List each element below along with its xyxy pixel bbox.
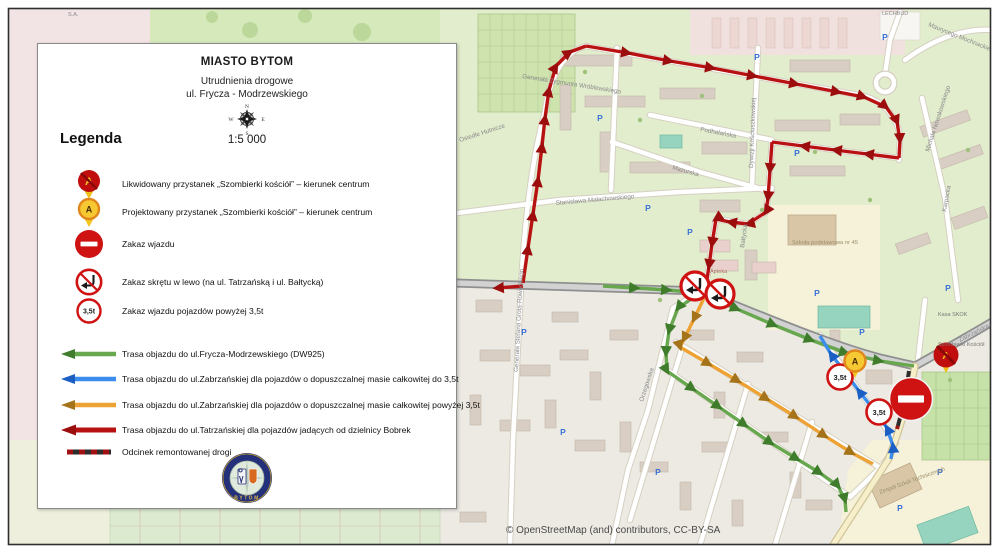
map-subtitle-line1: Utrudnienia drogowe — [38, 76, 456, 87]
red-route-swatch — [59, 423, 119, 437]
legend-item: A Projektowany przystanek „Szombierki ko… — [56, 200, 450, 224]
no-entry-icon — [74, 229, 104, 259]
poi-label: LECHBUD — [882, 11, 908, 17]
svg-text:E: E — [261, 117, 265, 123]
legend-item-label: Zakaz skrętu w lewo (na ul. Tatrzańską i… — [122, 277, 323, 287]
legend-item: A Likwidowany przystanek „Szombierki koś… — [56, 172, 450, 196]
legend-route-label: Trasa objazdu do ul.Frycza-Modrzewskiego… — [122, 349, 325, 359]
legend-item: Trasa objazdu do ul.Tatrzańskiej dla poj… — [56, 418, 450, 442]
poi-label: S.A. — [68, 12, 79, 18]
osm-attribution: © OpenStreetMap (and) contributors, CC-B… — [506, 525, 720, 536]
no-entry-sign — [890, 378, 933, 421]
legend-item: 3,5t Zakaz wjazdu pojazdów powyżej 3,5t — [56, 299, 450, 323]
weight-limit-sign: 3,5t — [867, 400, 892, 425]
bottom-allotments — [110, 508, 440, 545]
planned-stop-letter: A — [852, 357, 859, 367]
legend-route-label: Odcinek remontowanej drogi — [122, 447, 231, 457]
legend-route-label: Trasa objazdu do ul.Zabrzańskiej dla poj… — [122, 400, 480, 410]
weight-limit-text: 3,5t — [873, 408, 886, 417]
parking-icon: P — [645, 203, 651, 213]
legend-item: Trasa objazdu do ul.Frycza-Modrzewskiego… — [56, 342, 450, 366]
poi-label: Szkoła podstawowa nr 45 — [792, 240, 858, 246]
legend-panel: MIASTO BYTOM Utrudnienia drogowe ul. Fry… — [37, 43, 457, 509]
svg-text:A: A — [86, 204, 93, 214]
removed-stop-icon: A — [76, 169, 102, 200]
svg-text:W: W — [228, 117, 234, 123]
legend-item: Zakaz skrętu w lewo (na ul. Tatrzańską i… — [56, 270, 450, 294]
poi-label: Szombierki Kościół — [938, 342, 985, 348]
svg-text:3,5t: 3,5t — [83, 309, 96, 316]
compass-rose-icon: N S E W — [227, 102, 267, 136]
poi-label: Apteka — [710, 269, 728, 275]
bytom-seal-logo: BYTOM — [221, 452, 273, 504]
parking-icon: P — [794, 148, 800, 158]
planned-stop-icon: A — [76, 197, 102, 228]
no-left-turn-sign — [706, 280, 734, 308]
roadworks-swatch — [59, 446, 119, 458]
legend-item-label: Projektowany przystanek „Szombierki kośc… — [122, 207, 372, 217]
map-subtitle-line2: ul. Frycza - Modrzewskiego — [38, 89, 456, 100]
seal-text: BYTOM — [234, 496, 259, 502]
poi-label: Kasa SKOK — [938, 312, 968, 318]
blue-route-swatch — [59, 373, 119, 385]
orange-route-swatch — [59, 399, 119, 411]
parking-icon: P — [945, 283, 951, 293]
parking-icon: P — [882, 32, 888, 42]
parking-icon: P — [560, 427, 566, 437]
legend-route-label: Trasa objazdu do ul.Zabrzańskiej dla poj… — [122, 374, 458, 384]
parking-icon: P — [597, 113, 603, 123]
parking-icon: P — [687, 227, 693, 237]
parking-icon: P — [814, 288, 820, 298]
legend-item-label: Zakaz wjazdu pojazdów powyżej 3,5t — [122, 306, 263, 316]
weight-limit-text: 3,5t — [834, 373, 847, 382]
legend-item-label: Likwidowany przystanek „Szombierki kości… — [122, 179, 369, 189]
map-title: MIASTO BYTOM — [38, 56, 456, 68]
legend-item-label: Zakaz wjazdu — [122, 239, 175, 249]
green-route-swatch — [59, 348, 119, 360]
parking-icon: P — [655, 467, 661, 477]
legend-route-label: Trasa objazdu do ul.Tatrzańskiej dla poj… — [122, 425, 411, 435]
weight-limit-icon: 3,5t — [76, 298, 102, 324]
legend-item: Zakaz wjazdu — [56, 232, 450, 256]
parking-icon: P — [754, 52, 760, 62]
no-left-turn-icon — [75, 268, 103, 296]
legend-item: Trasa objazdu do ul.Zabrzańskiej dla poj… — [56, 393, 450, 417]
map-document: 3,5t 3,5t A A P P P P P P P P P P — [0, 0, 1000, 553]
parking-icon: P — [897, 503, 903, 513]
legend-heading: Legenda — [60, 130, 122, 147]
legend-item: Trasa objazdu do ul.Zabrzańskiej dla poj… — [56, 367, 450, 391]
parking-icon: P — [859, 327, 865, 337]
cemetery-area — [922, 372, 992, 460]
